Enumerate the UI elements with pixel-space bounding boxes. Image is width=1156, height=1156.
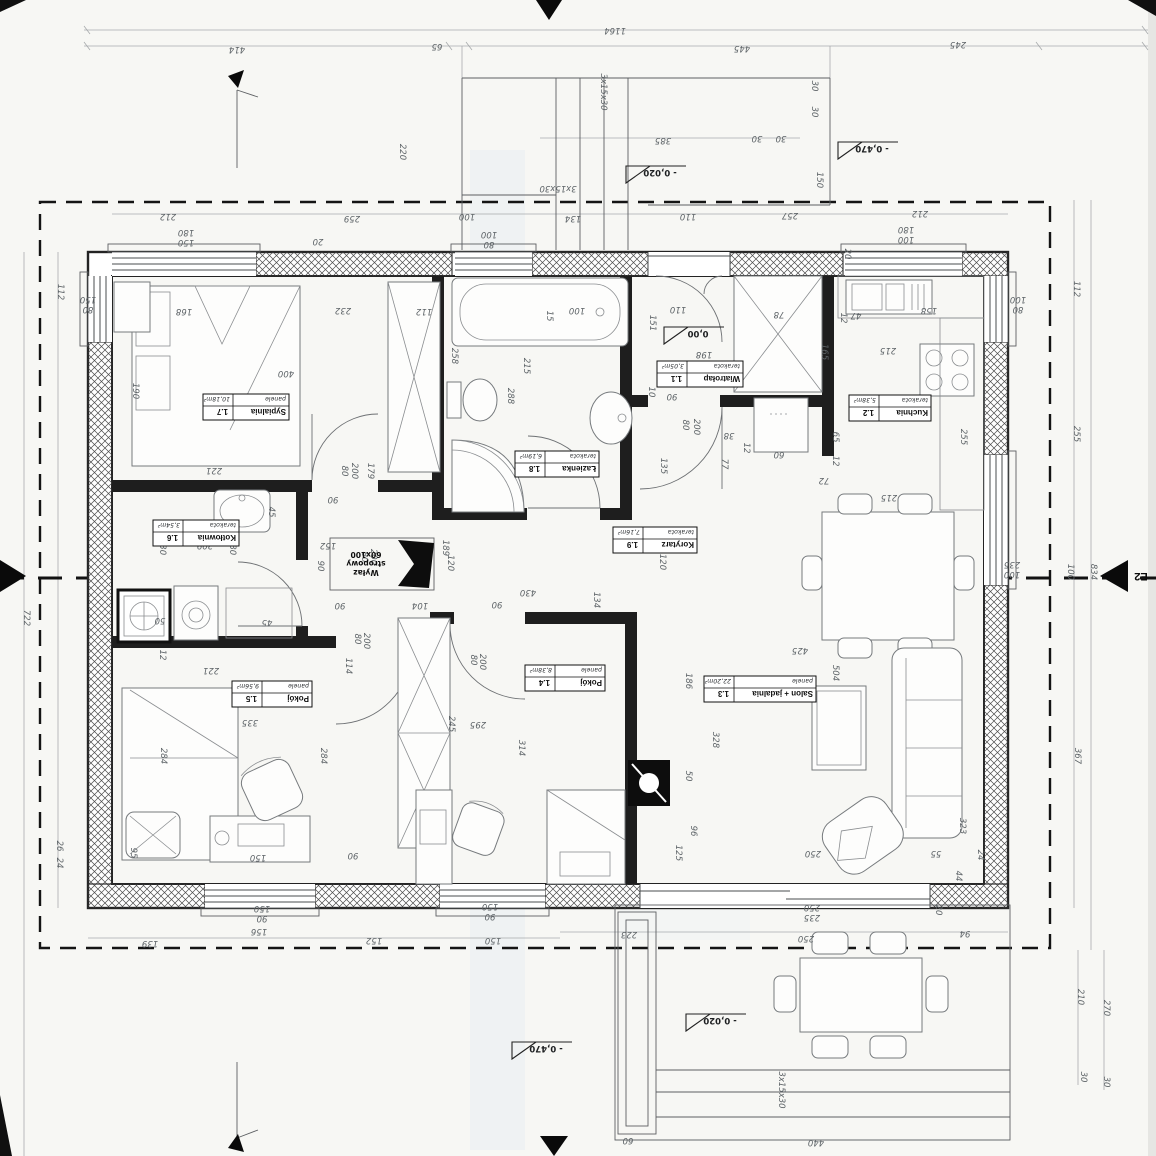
- room-label-1.9: Korytarz1.9terakota7,16m²: [613, 527, 697, 553]
- dimension-label: 425: [792, 645, 808, 655]
- entrance-door-opening: [648, 252, 730, 276]
- dimension-label: 80: [1013, 304, 1024, 314]
- room-name: Salon + jadalnia: [752, 689, 813, 698]
- dimension-label: 200: [691, 419, 701, 435]
- dimension-label: 78: [773, 309, 784, 319]
- window-top-left: [108, 244, 260, 276]
- dimension-label: 112: [416, 306, 432, 316]
- dimension-label: 235: [804, 912, 820, 922]
- dimension-label: 156: [250, 926, 267, 936]
- dimension-label: 385: [655, 135, 671, 145]
- dimension-label: 125: [673, 845, 683, 861]
- section-arrow-top: [536, 0, 562, 20]
- room-area: 7,16m²: [617, 528, 640, 535]
- hatch-annotation-line: 60x100: [351, 550, 382, 559]
- dimension-label: 288: [505, 388, 515, 405]
- dimension-label: 110: [680, 211, 696, 221]
- dimension-label: 26: [54, 841, 64, 852]
- dimension-label: 150: [482, 901, 498, 911]
- dimension-label: 30: [1078, 1072, 1088, 1083]
- room-name: Pokój: [580, 678, 602, 687]
- dimension-label: 212: [160, 211, 176, 221]
- room-label-1.8: Łazienka1.8terakota6,19m²: [515, 451, 599, 477]
- room-label-1.2: Kuchnia1.2terakota5,38m²: [849, 395, 931, 421]
- dimension-label: 430: [520, 587, 536, 597]
- dimension-label: 44: [953, 871, 963, 882]
- room-floor-material: panele: [792, 677, 814, 684]
- sofa: [892, 648, 962, 838]
- washing-machine: [174, 586, 218, 640]
- washbasin-bath: [590, 392, 632, 444]
- dimension-label: 235: [1004, 559, 1020, 569]
- section-flag-top-left: [228, 70, 258, 168]
- room-label-1.4: Pokój1.4panele8,38m²: [525, 665, 605, 691]
- dimension-label: 215: [880, 345, 896, 355]
- dimension-label: 45: [266, 507, 276, 518]
- level-value: - 0,470: [529, 1043, 562, 1053]
- planter: [618, 912, 656, 1134]
- level-marker: - 0,470: [838, 142, 898, 159]
- kitchen-sink: [846, 280, 932, 314]
- dimension-label: 112: [55, 284, 65, 300]
- dimension-label: 250: [804, 902, 820, 912]
- room-name: Łazienka: [562, 464, 596, 473]
- dimension-label: 65: [432, 41, 443, 51]
- dimension-label: 150: [254, 903, 270, 913]
- dimension-label: 284: [158, 748, 168, 764]
- dimension-label: 12: [741, 443, 751, 454]
- dimension-label: 250: [805, 848, 821, 858]
- room-name: Sypialnia: [250, 407, 286, 416]
- room-number: 1.1: [670, 374, 682, 383]
- dimension-label: 30: [809, 81, 819, 92]
- dimension-label: 47: [850, 310, 861, 320]
- dimension-label: 3x15x30: [598, 73, 608, 110]
- dimension-label: 50: [683, 771, 693, 782]
- room-name: Wiatrołap: [704, 374, 740, 383]
- hatch-annotation-line: Wyłaz: [353, 568, 378, 577]
- room-number: 1.9: [626, 540, 638, 549]
- level-marker: - 0,020: [686, 1014, 746, 1031]
- room-number: 1.3: [717, 689, 729, 698]
- level-value: 0,00: [687, 328, 708, 338]
- room-name: Pokój: [287, 694, 309, 703]
- dimension-label: 220: [397, 144, 407, 160]
- room-number: 1.2: [862, 408, 874, 417]
- room-label-1.3: Salon + jadalnia1.3panele22,20m²: [704, 676, 816, 702]
- dimension-label: 245: [446, 716, 456, 732]
- room-floor-material: panele: [581, 666, 603, 673]
- dimension-label: 179: [365, 463, 375, 479]
- room-area: 10,18m²: [203, 395, 230, 402]
- dimension-label: 60: [623, 1135, 634, 1145]
- room-label-1.7: Sypialnia1.7panele10,18m²: [203, 394, 289, 420]
- dimension-label: 100: [898, 234, 914, 244]
- room-floor-material: terakota: [668, 528, 694, 536]
- dimension-label: 190: [130, 383, 140, 399]
- room-label-1.1: Wiatrołap1.1terakota3,05m²: [657, 361, 743, 387]
- dimension-label: 314: [516, 740, 526, 756]
- dimension-label: 60: [774, 449, 785, 459]
- dimension-label: 20: [313, 236, 324, 246]
- dimension-label: 12: [157, 650, 167, 661]
- dimension-label: 100: [1065, 564, 1075, 580]
- dimension-label: 284: [318, 748, 328, 764]
- dimension-label: 100: [459, 211, 475, 221]
- level-marker: - 0,020: [626, 166, 686, 183]
- dimension-label: 90: [348, 850, 359, 860]
- dimension-label: 200: [349, 463, 359, 479]
- dimension-label: 221: [206, 465, 222, 475]
- dimension-label: 30: [776, 133, 787, 143]
- dimension-label: 151: [647, 315, 657, 331]
- dimension-label: 152: [366, 935, 382, 945]
- level-value: - 0,470: [855, 143, 888, 153]
- dimension-label: 212: [912, 208, 928, 218]
- dimension-label: 414: [229, 44, 245, 54]
- coffee-table: [812, 686, 866, 770]
- room-label-1.5: Pokój1.5panele9,56m²: [232, 681, 312, 707]
- dimension-label: 258: [449, 348, 459, 365]
- dimension-label: 72: [819, 475, 830, 485]
- dimension-label: 90: [492, 599, 503, 609]
- dimension-label: 90: [485, 911, 496, 921]
- terrace-table: [774, 932, 948, 1058]
- dimension-label: 152: [320, 540, 336, 550]
- room-number: 1.4: [538, 678, 550, 687]
- dimension-label: 215: [521, 358, 531, 374]
- dimension-label: 135: [658, 458, 668, 474]
- dimension-label: 232: [335, 305, 351, 315]
- dimension-label: 328: [710, 732, 720, 749]
- dimension-label: 150: [80, 294, 96, 304]
- dimension-label: 210: [1075, 989, 1085, 1005]
- dimension-label: 255: [1071, 426, 1081, 442]
- window-top-right: [841, 244, 966, 276]
- dimension-label: 139: [142, 938, 158, 948]
- dimension-label: 150: [178, 237, 194, 247]
- dimension-label: 257: [781, 210, 798, 220]
- level-value: - 0,020: [703, 1015, 736, 1025]
- dimension-label: 24: [54, 858, 64, 869]
- dimension-label: 134: [565, 213, 581, 223]
- dimension-label: 30: [752, 133, 763, 143]
- dimension-label: 180: [178, 227, 194, 237]
- dimension-label: 80: [83, 304, 94, 314]
- dimension-label: 270: [1101, 1000, 1111, 1016]
- dimension-label: 80: [468, 655, 478, 666]
- dimension-label: 100: [1004, 569, 1020, 579]
- dimension-label: 50: [155, 615, 166, 625]
- room-number: 1.6: [166, 533, 178, 542]
- room-name: Korytarz: [662, 540, 694, 549]
- dimension-label: 30: [809, 107, 819, 118]
- dimension-label: 94: [960, 928, 971, 938]
- dimension-label: 834: [1088, 564, 1098, 580]
- dimension-label: 168: [175, 306, 192, 316]
- room-area: 6,19m²: [519, 452, 542, 459]
- dimension-label: 259: [344, 213, 360, 223]
- dimension-label: 90: [315, 561, 325, 572]
- dimension-label: 90: [257, 913, 268, 923]
- dimension-label: 104: [412, 600, 428, 610]
- room-floor-material: panele: [265, 395, 287, 402]
- dimension-label: 3x15x30: [539, 183, 576, 193]
- section-label: E2: [1134, 570, 1147, 582]
- dimension-label: 20: [933, 905, 943, 916]
- bathtub: [452, 278, 628, 346]
- dimension-label: 120: [445, 555, 455, 571]
- dimension-label: 90: [667, 391, 678, 401]
- dimension-label: 165: [819, 344, 829, 360]
- dimension-label: 250: [798, 933, 814, 943]
- dimension-label: 96: [688, 826, 698, 837]
- room-name: Kotłownia: [197, 533, 236, 542]
- dimension-label: 80: [352, 634, 362, 645]
- dimension-label: 186: [683, 673, 693, 690]
- dimension-label: 90: [328, 494, 339, 504]
- section-flag-bottom-left: [228, 1062, 258, 1152]
- dimension-label: 77: [719, 459, 729, 470]
- plan-drawing: 1164414654452452203x15x30385303030301503…: [0, 0, 1156, 1156]
- toilet: [447, 379, 497, 421]
- room-area: 9,56m²: [236, 682, 259, 689]
- dimension-label: 55: [931, 848, 942, 858]
- dimension-label: 38: [723, 430, 734, 440]
- terrace-sliding-door: [640, 884, 930, 908]
- room-area: 5,38m²: [853, 396, 876, 403]
- dimension-label: 80: [339, 466, 349, 477]
- dimension-label: 722: [21, 610, 31, 626]
- dimension-label: 189: [440, 540, 450, 556]
- dimension-label: 112: [1071, 281, 1081, 297]
- dimension-label: 110: [670, 304, 686, 314]
- dimension-label: 221: [203, 665, 219, 675]
- dimension-label: 223: [621, 929, 637, 939]
- level-value: - 0,020: [643, 167, 676, 177]
- dimension-label: 215: [881, 492, 897, 502]
- dimension-label: 180: [898, 224, 914, 234]
- dimension-label: 100: [1010, 294, 1026, 304]
- dimension-label: 12: [830, 456, 840, 467]
- room-area: 3,54m²: [157, 521, 180, 528]
- section-arrow-left: [0, 560, 26, 592]
- room-name: Kuchnia: [896, 408, 928, 417]
- room-label-1.6: Kotłownia1.6terakota3,54m²: [153, 520, 239, 546]
- section-arrow-bottom: [540, 1136, 568, 1156]
- dimension-label: 12: [838, 313, 848, 324]
- dimension-label: 100: [569, 305, 585, 315]
- dimension-label: 400: [278, 368, 294, 378]
- section-arrow-right: [1100, 560, 1128, 592]
- dimension-label: 150: [485, 935, 501, 945]
- room-number: 1.5: [245, 694, 257, 703]
- room-number: 1.8: [528, 464, 540, 473]
- room-area: 22,20m²: [704, 677, 731, 684]
- room-floor-material: terakota: [210, 521, 236, 529]
- dining-table: [802, 494, 974, 658]
- dimension-label: 120: [657, 554, 667, 570]
- bedroom-furniture: [114, 282, 440, 472]
- dimension-label: 255: [958, 429, 968, 445]
- room-area: 3,05m²: [661, 362, 684, 369]
- dimension-label: 45: [262, 617, 273, 627]
- dimension-label: 10: [646, 387, 656, 398]
- dimension-label: 200: [361, 633, 371, 649]
- entry-closet: [734, 276, 822, 392]
- dimension-label: 80: [484, 239, 495, 249]
- room-floor-material: terakota: [714, 362, 740, 370]
- dimension-label: 3x15x30: [776, 1071, 786, 1108]
- room-number: 1.7: [216, 407, 228, 416]
- floor-plan-sheet: 1164414654452452203x15x30385303030301503…: [0, 0, 1156, 1156]
- dimension-label: 65: [830, 432, 840, 443]
- dimension-label: 1164: [604, 25, 626, 35]
- hatch-annotation-line: stropowy: [346, 559, 385, 568]
- dimension-label: 445: [734, 43, 750, 53]
- room-floor-material: terakota: [570, 452, 596, 460]
- dimension-label: 15: [544, 311, 554, 322]
- dimension-label: 100: [481, 229, 497, 239]
- dimension-label: 295: [470, 719, 486, 729]
- dimension-label: 198: [695, 349, 712, 359]
- dimension-label: 367: [1072, 748, 1082, 765]
- dimension-label: 114: [343, 658, 353, 674]
- dimension-label: 95: [128, 848, 138, 859]
- fireplace: [628, 760, 670, 806]
- dimension-label: 245: [950, 39, 966, 49]
- dimension-label: 504: [830, 665, 840, 681]
- dimension-label: 90: [335, 600, 346, 610]
- dimension-label: 24: [975, 850, 985, 861]
- dimension-label: 150: [250, 852, 266, 862]
- hob: [920, 344, 974, 396]
- cabinet-60: [754, 398, 808, 452]
- desk-14: [416, 790, 452, 884]
- room-floor-material: terakota: [902, 396, 928, 404]
- dimension-label: 323: [957, 818, 967, 834]
- dimension-label: 440: [808, 1137, 824, 1147]
- dimension-label: 80: [680, 420, 690, 431]
- dimension-label: 150: [814, 172, 824, 188]
- dimension-label: 200: [477, 654, 487, 670]
- window-right-top: [984, 272, 1016, 346]
- room-floor-material: panele: [288, 682, 310, 689]
- dimension-label: 158: [920, 305, 937, 315]
- room-area: 8,38m²: [529, 666, 552, 673]
- dimension-label: 20: [842, 249, 852, 260]
- dimension-label: 30: [1101, 1077, 1111, 1088]
- dimension-label: 335: [242, 717, 258, 727]
- dimension-label: 134: [591, 592, 601, 608]
